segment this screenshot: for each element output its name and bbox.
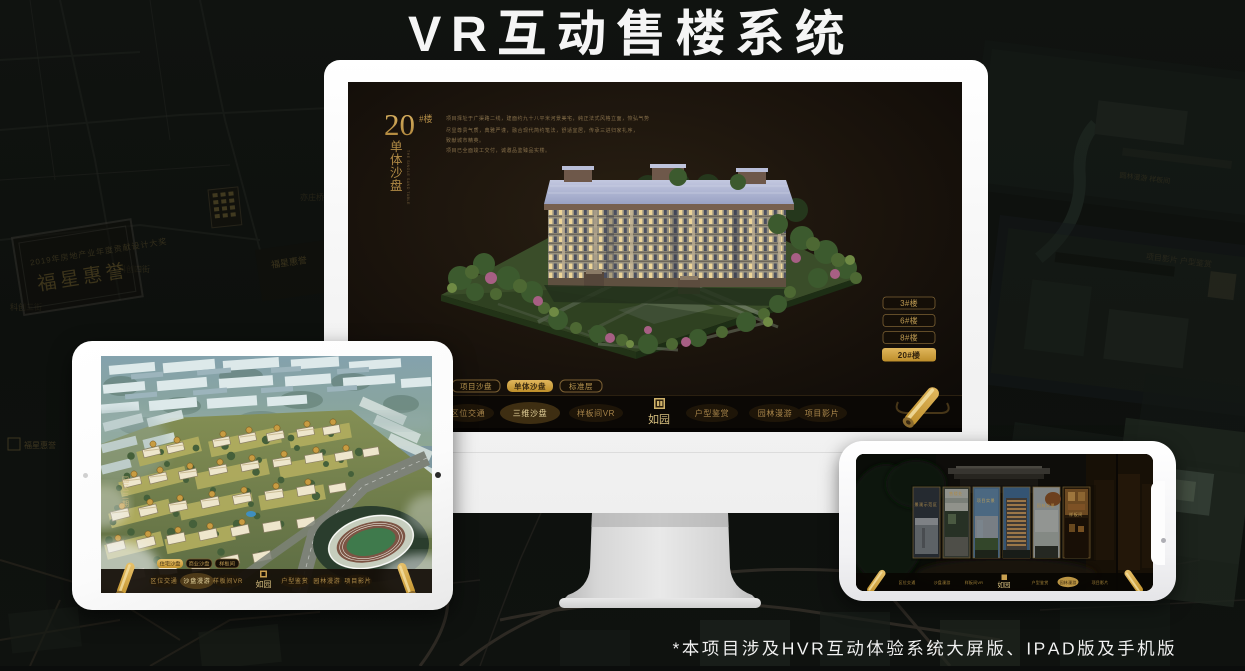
svg-text:样板间VR: 样板间VR	[577, 408, 615, 418]
svg-text:单体沙盘: 单体沙盘	[514, 381, 546, 391]
svg-text:样板间VR: 样板间VR	[213, 577, 243, 585]
svg-text:商业沙盘: 商业沙盘	[189, 560, 210, 568]
svg-text:6#楼: 6#楼	[900, 316, 918, 326]
svg-text:20: 20	[384, 107, 415, 142]
svg-text:20#楼: 20#楼	[898, 350, 921, 360]
svg-text:户型鉴赏: 户型鉴赏	[281, 577, 308, 585]
svg-text:8#楼: 8#楼	[900, 333, 918, 343]
svg-text:尽显尊贵气质，典雅严谨，融合现代简约笔法，舒适宜居，传承三进: 尽显尊贵气质，典雅严谨，融合现代简约笔法，舒适宜居，传承三进归家礼序，	[446, 127, 639, 134]
svg-text:项目影片: 项目影片	[1092, 579, 1109, 585]
svg-text:园林漫游: 园林漫游	[758, 408, 792, 418]
svg-text:样板间VR: 样板间VR	[965, 579, 984, 585]
svg-text:户型鉴赏: 户型鉴赏	[695, 408, 729, 418]
svg-text:项目影片: 项目影片	[805, 408, 839, 418]
svg-text:沙盘漫游: 沙盘漫游	[183, 577, 210, 585]
svg-text:园林漫游: 园林漫游	[313, 577, 340, 585]
svg-text:如园: 如园	[256, 579, 272, 589]
svg-text:样板间: 样板间	[219, 560, 235, 568]
svg-text:沙盘漫游: 沙盘漫游	[934, 579, 951, 585]
svg-text:区位交通: 区位交通	[899, 579, 916, 585]
svg-text:项目已全面竣工交付，诚邀品鉴臻品实楼。: 项目已全面竣工交付，诚邀品鉴臻品实楼。	[446, 147, 551, 154]
svg-text:THE SINGLE SAND TABLE: THE SINGLE SAND TABLE	[406, 150, 410, 205]
svg-text:户型鉴赏: 户型鉴赏	[1032, 579, 1049, 585]
svg-text:住宅沙盘: 住宅沙盘	[160, 560, 181, 568]
svg-text:#楼: #楼	[419, 113, 433, 124]
svg-text:园林漫游: 园林漫游	[1060, 579, 1077, 585]
svg-text:区位交通: 区位交通	[451, 408, 485, 418]
svg-text:3#楼: 3#楼	[900, 298, 918, 308]
svg-text:单体沙盘: 单体沙盘	[390, 140, 403, 193]
svg-text:项目沙盘: 项目沙盘	[460, 381, 492, 391]
svg-text:项目影片: 项目影片	[344, 577, 371, 585]
svg-text:致献城市精英。: 致献城市精英。	[446, 137, 485, 144]
svg-text:项目择址于广渠路二线，建面约九十八平米河景美宅，純正法式风格: 项目择址于广渠路二线，建面约九十八平米河景美宅，純正法式风格立面，恢弘气势	[446, 115, 650, 122]
svg-text:三维沙盘: 三维沙盘	[513, 408, 547, 418]
svg-text:如园: 如园	[648, 412, 670, 426]
svg-text:区位交通: 区位交通	[150, 577, 177, 585]
svg-text:标准层: 标准层	[569, 381, 593, 391]
svg-text:如园: 如园	[998, 580, 1011, 589]
